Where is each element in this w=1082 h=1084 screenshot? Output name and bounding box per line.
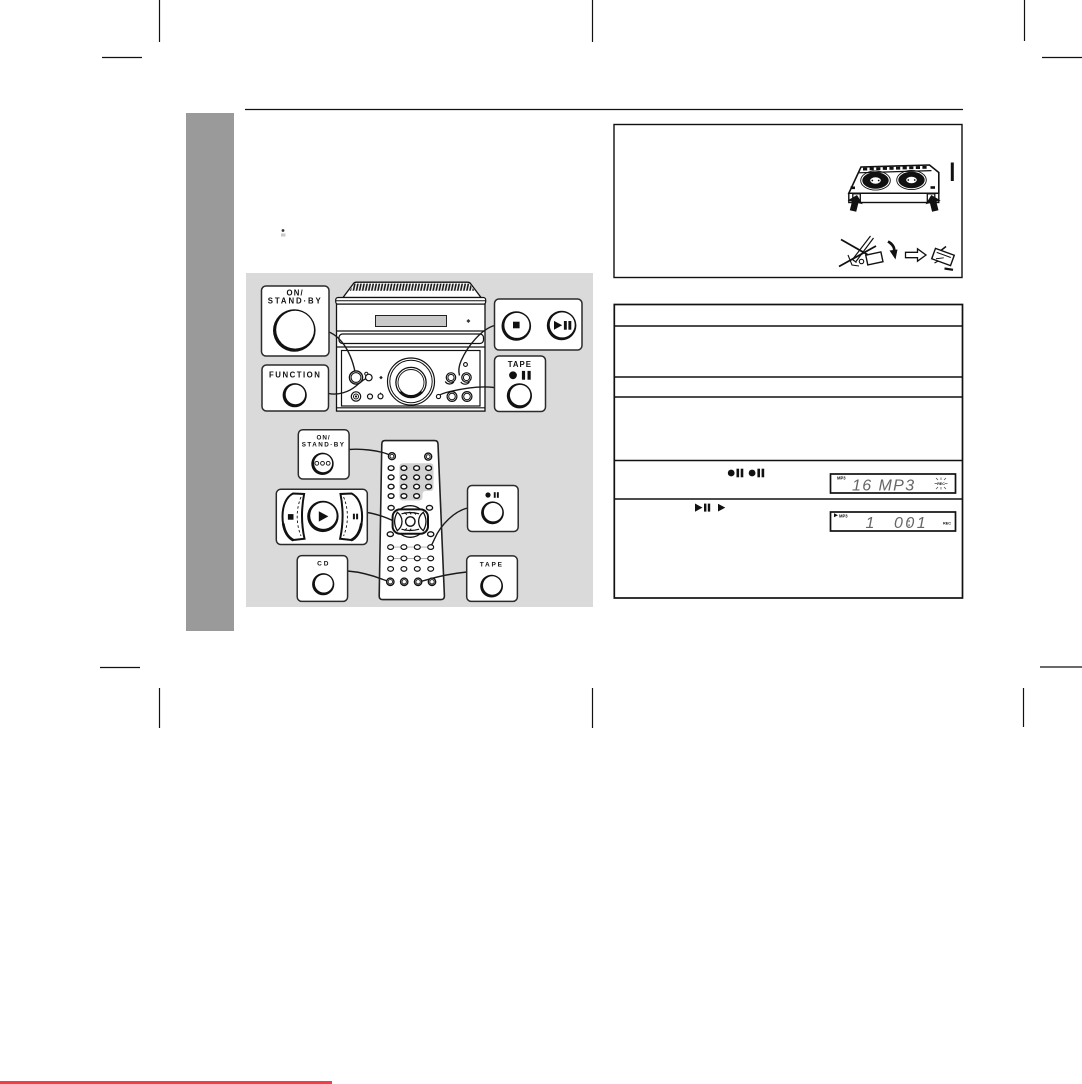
svg-text:MP3: MP3 [839, 513, 848, 518]
svg-text:REC: REC [943, 522, 951, 526]
svg-text:FUNCTION: FUNCTION [269, 370, 321, 379]
svg-text:MP3: MP3 [837, 476, 846, 481]
svg-text:STAND·BY: STAND·BY [302, 442, 346, 449]
svg-text:REC: REC [937, 482, 945, 486]
svg-text:TAPE: TAPE [480, 562, 504, 569]
svg-text:001: 001 [894, 515, 928, 532]
svg-text:STAND·BY: STAND·BY [268, 297, 323, 306]
svg-text:ON/: ON/ [316, 434, 330, 441]
svg-text:TAPE: TAPE [508, 360, 532, 369]
svg-text:1: 1 [866, 515, 875, 532]
svg-text:CD: CD [317, 560, 330, 567]
svg-text:16 MP3: 16 MP3 [852, 478, 916, 495]
